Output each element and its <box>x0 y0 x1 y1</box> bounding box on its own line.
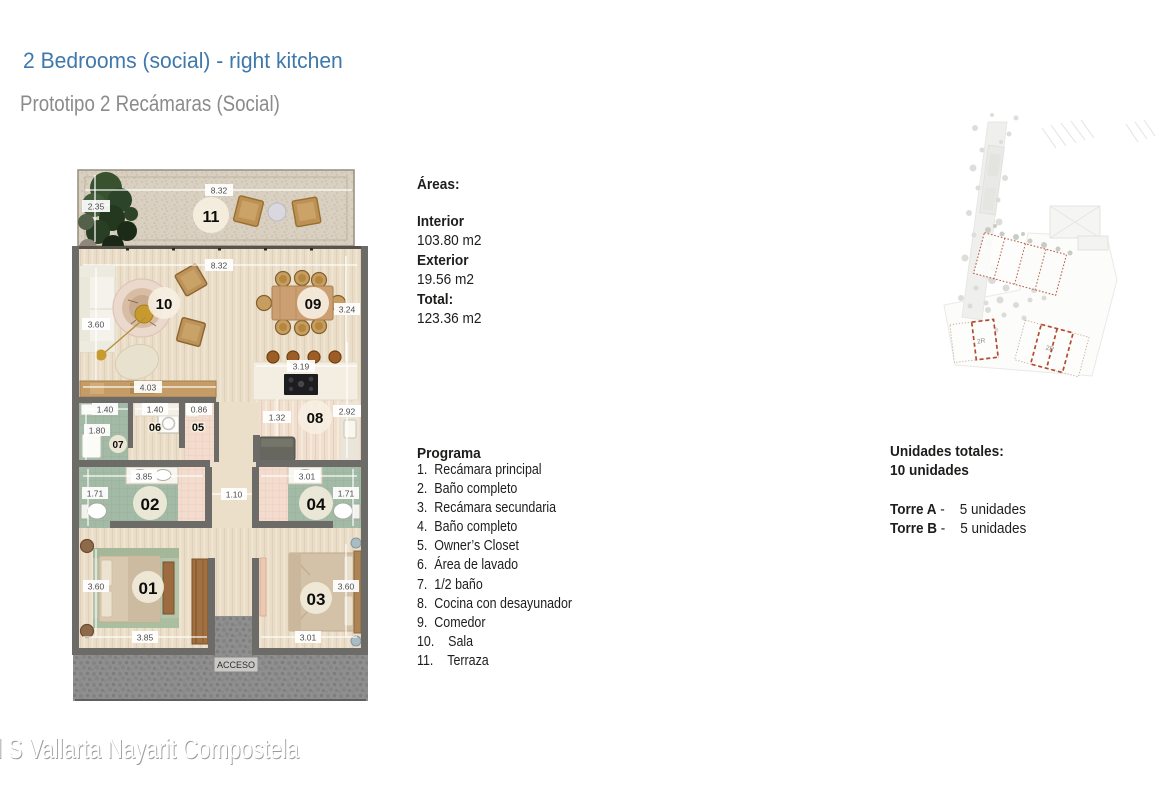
svg-text:04: 04 <box>307 495 326 514</box>
svg-text:8.32: 8.32 <box>211 261 228 271</box>
svg-text:03: 03 <box>307 590 326 609</box>
svg-text:08: 08 <box>307 410 324 427</box>
svg-text:3.85: 3.85 <box>136 472 153 482</box>
svg-text:3.24: 3.24 <box>339 305 356 315</box>
svg-text:3.60: 3.60 <box>338 582 355 592</box>
svg-text:10: 10 <box>156 296 173 313</box>
svg-text:3.60: 3.60 <box>88 582 105 592</box>
svg-text:ACCESO: ACCESO <box>217 660 255 670</box>
svg-text:01: 01 <box>139 579 158 598</box>
svg-text:1.40: 1.40 <box>147 405 164 415</box>
svg-text:09: 09 <box>305 296 322 313</box>
svg-text:3.01: 3.01 <box>299 472 316 482</box>
svg-text:3.85: 3.85 <box>137 633 154 643</box>
svg-text:2.92: 2.92 <box>339 407 356 417</box>
svg-text:02: 02 <box>141 495 160 514</box>
svg-text:3.01: 3.01 <box>300 633 317 643</box>
svg-text:1.10: 1.10 <box>226 490 243 500</box>
svg-text:05: 05 <box>192 422 204 434</box>
svg-text:1.40: 1.40 <box>97 405 114 415</box>
svg-text:1.80: 1.80 <box>89 426 106 436</box>
svg-text:11: 11 <box>203 209 220 226</box>
svg-text:1.71: 1.71 <box>87 489 104 499</box>
svg-text:2.35: 2.35 <box>88 202 105 212</box>
svg-text:2R: 2R <box>977 338 986 346</box>
svg-text:07: 07 <box>112 440 124 451</box>
svg-text:4.03: 4.03 <box>140 383 157 393</box>
svg-text:1.71: 1.71 <box>338 489 355 499</box>
svg-text:06: 06 <box>149 422 161 434</box>
svg-text:1.32: 1.32 <box>269 413 286 423</box>
svg-text:3.60: 3.60 <box>88 320 105 330</box>
svg-text:0.86: 0.86 <box>191 405 208 415</box>
svg-text:8.32: 8.32 <box>211 186 228 196</box>
svg-text:3.19: 3.19 <box>293 362 310 372</box>
